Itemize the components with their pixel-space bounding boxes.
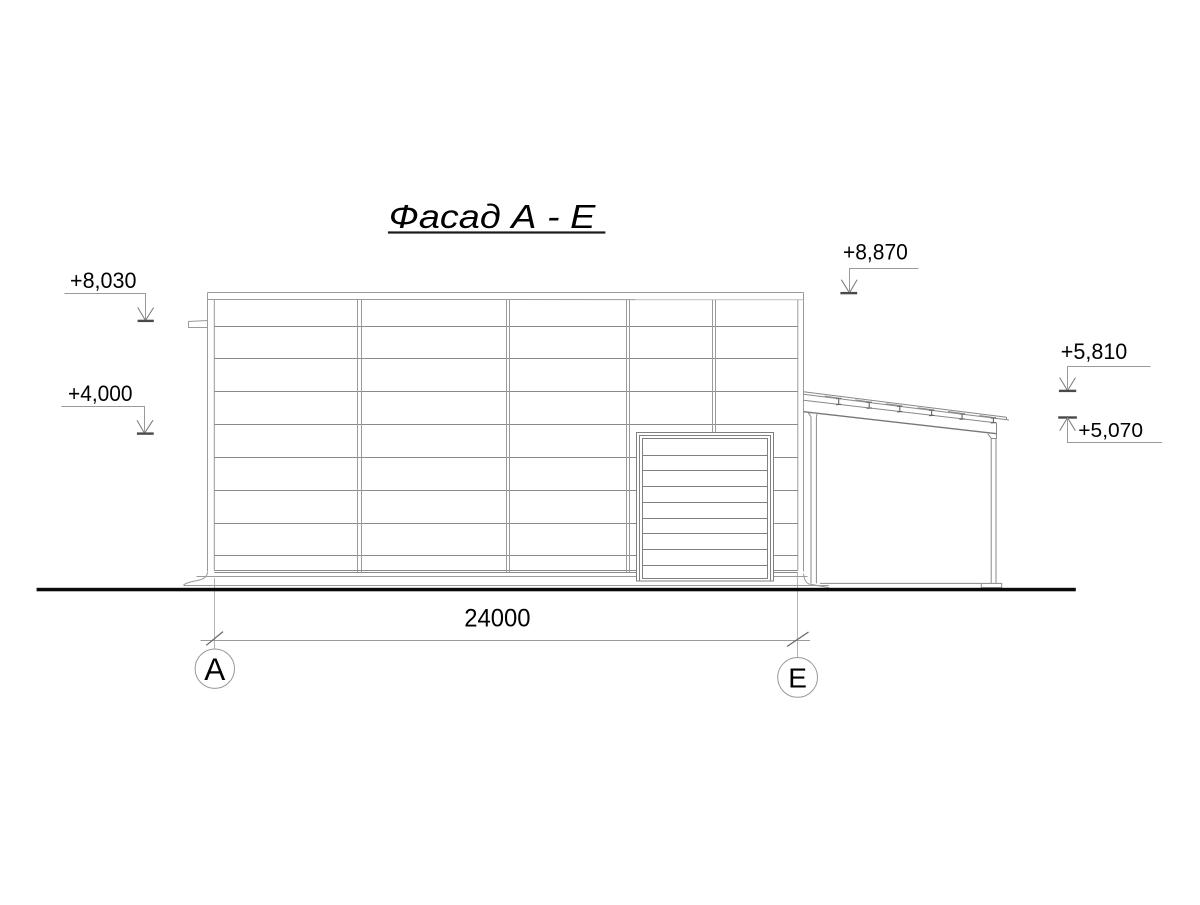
svg-text:24000: 24000 bbox=[464, 605, 530, 633]
svg-text:+8,870: +8,870 bbox=[843, 240, 908, 265]
svg-text:+4,000: +4,000 bbox=[68, 381, 133, 406]
svg-text:+5,070: +5,070 bbox=[1078, 419, 1143, 442]
svg-text:+5,810: +5,810 bbox=[1061, 339, 1128, 364]
svg-text:Фасад А - Е: Фасад А - Е bbox=[389, 198, 597, 235]
svg-text:Е: Е bbox=[788, 662, 807, 693]
svg-text:+8,030: +8,030 bbox=[70, 268, 137, 293]
svg-text:А: А bbox=[204, 651, 225, 687]
